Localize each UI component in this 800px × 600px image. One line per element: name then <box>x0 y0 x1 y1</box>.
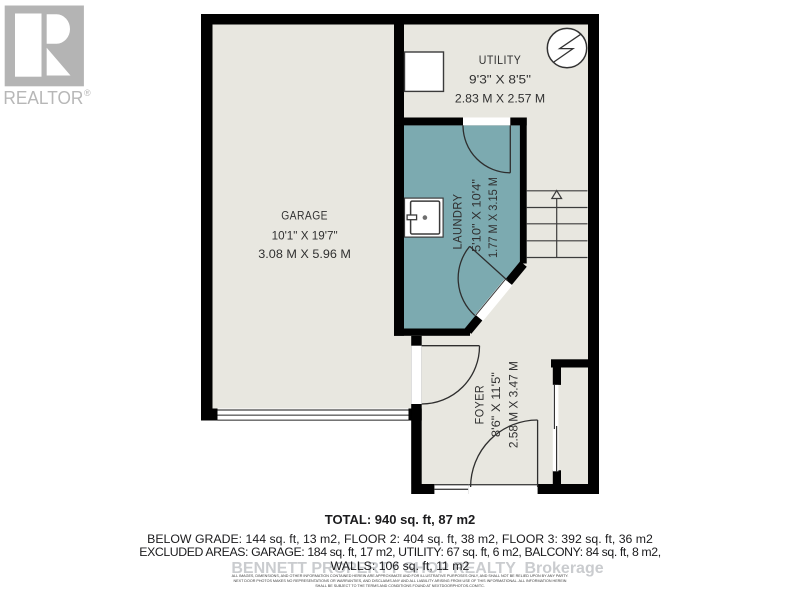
svg-text:1.77 M X 3.15 M: 1.77 M X 3.15 M <box>488 177 500 258</box>
svg-text:2.58 M X 3.47 M: 2.58 M X 3.47 M <box>508 361 520 448</box>
svg-text:10'1" X 19'7": 10'1" X 19'7" <box>272 231 338 243</box>
svg-text:FOYER: FOYER <box>474 385 486 425</box>
svg-text:2.83 M X 2.57 M: 2.83 M X 2.57 M <box>455 93 545 105</box>
svg-text:9'3" X 8'5": 9'3" X 8'5" <box>469 75 531 87</box>
svg-text:LAUNDRY: LAUNDRY <box>452 194 464 250</box>
svg-text:UTILITY: UTILITY <box>479 55 522 67</box>
svg-text:5'10" X 10'4": 5'10" X 10'4" <box>471 179 483 252</box>
svg-text:8'6" X 11'5": 8'6" X 11'5" <box>491 372 503 437</box>
svg-text:3.08 M X 5.96 M: 3.08 M X 5.96 M <box>258 249 351 261</box>
svg-text:GARAGE: GARAGE <box>281 210 328 222</box>
